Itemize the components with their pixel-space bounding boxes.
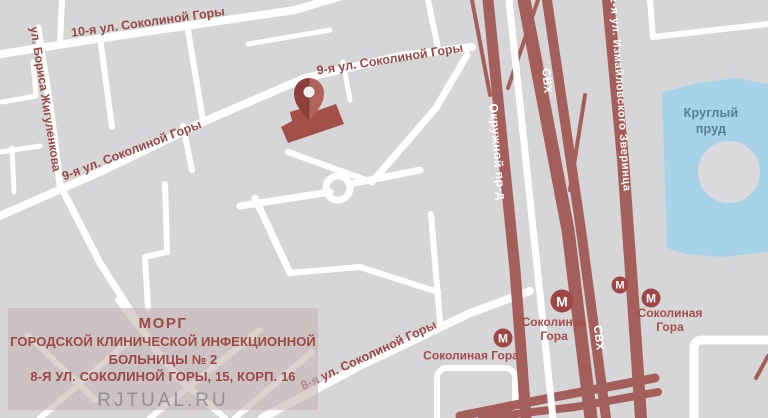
metro-icon: М	[612, 277, 629, 294]
map: 10-я ул. Соколиной Горы ул. Бориса Жигул…	[0, 0, 768, 418]
metro-icon: М	[551, 290, 574, 313]
info-line-address: 8-Я УЛ. СОКОЛИНОЙ ГОРЫ, 15, КОРП. 16	[8, 368, 318, 386]
metro-station-label: Соколиная Гора	[513, 316, 595, 344]
info-line-hospital: ГОРОДСКОЙ КЛИНИЧЕСКОЙ ИНФЕКЦИОННОЙ	[8, 333, 318, 351]
metro-icon: М	[642, 289, 661, 308]
metro-icon: М	[494, 329, 513, 348]
metro-station-label: Соколиная Гора	[629, 307, 711, 335]
highway-label-svh-top: СВХ	[539, 68, 554, 95]
pond-island	[698, 141, 760, 203]
pond-label: Круглый пруд	[673, 105, 749, 138]
info-title: МОРГ	[8, 315, 318, 333]
metro-station-label: Соколиная Гора	[423, 349, 519, 362]
watermark-logo: RJTUAL.RU	[8, 390, 318, 412]
info-box: МОРГ ГОРОДСКОЙ КЛИНИЧЕСКОЙ ИНФЕКЦИОННОЙ …	[8, 308, 318, 410]
info-line-hospital-number: БОЛЬНИЦЫ № 2	[8, 351, 318, 369]
